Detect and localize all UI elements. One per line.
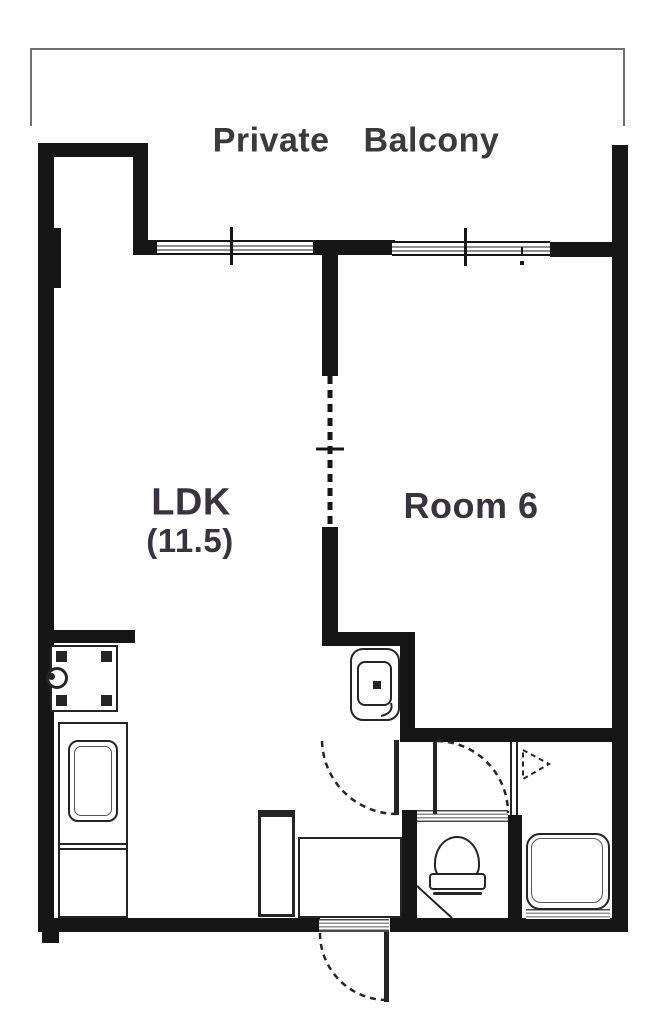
kitchen-sink — [68, 740, 118, 822]
wall-bottom-left — [38, 918, 320, 932]
hinged-door-entrance — [384, 932, 389, 1002]
ldk-label: LDK — [151, 482, 231, 525]
wall-partition-bottom — [322, 527, 338, 645]
wall-bottom-foot — [42, 932, 59, 943]
hinged-door-ldk — [394, 740, 399, 815]
kitchen-sink-basin — [74, 746, 112, 816]
wall-under-room6 — [400, 728, 628, 742]
window-left-center-tick — [230, 227, 233, 265]
door-arc-entrance — [320, 933, 386, 1000]
wall-washbasin-top — [322, 632, 415, 646]
bathtub-sill — [526, 909, 610, 919]
balcony-outline-left — [30, 48, 32, 126]
floor-plan: Private Balcony LDK (11.5) Room 6 — [0, 0, 658, 1024]
shoe-cabinet — [258, 810, 295, 917]
wall-toilet-bath-divider — [508, 815, 522, 932]
wall-top-left — [38, 143, 148, 157]
toilet-tank — [429, 873, 486, 890]
balcony-outline-top — [30, 48, 625, 50]
wall-left — [38, 143, 54, 932]
toilet-corner-diagonal — [417, 886, 452, 918]
window-right-division — [521, 247, 523, 256]
wall-partition-top — [322, 252, 338, 376]
entrance-step — [298, 837, 402, 918]
room6-label: Room 6 — [403, 485, 538, 527]
pan-corner-br — [101, 695, 112, 706]
door-arc-toilet — [437, 741, 508, 813]
pan-drain-dot — [48, 673, 55, 680]
wall-window-right-end — [550, 242, 612, 257]
washing-machine-pan — [50, 645, 118, 712]
folding-bath-door-icon — [523, 750, 549, 779]
ldk-size-label: (11.5) — [146, 522, 233, 560]
balcony-label: Private Balcony — [213, 122, 500, 161]
window-right-center-tick — [464, 228, 467, 266]
toilet-door-sill — [417, 810, 508, 822]
hinged-door-toilet — [433, 742, 437, 814]
toilet-tank-base-line — [433, 892, 482, 895]
pan-corner-bl — [56, 695, 67, 706]
wall-kitchen-stub — [54, 630, 135, 643]
wall-right — [612, 145, 628, 932]
kitchen-counter-divider — [58, 843, 128, 850]
balcony-outline-right — [623, 48, 625, 126]
bathtub — [526, 833, 610, 910]
folding-bath-door-frame — [510, 742, 518, 815]
door-arc-ldk — [322, 741, 396, 814]
sliding-window-right — [392, 241, 550, 256]
wall-left-pilaster — [54, 228, 61, 288]
sliding-window-left — [157, 240, 313, 255]
pan-corner-tl — [56, 651, 67, 662]
pan-corner-tr — [101, 651, 112, 662]
entrance-door-sill — [319, 919, 389, 932]
wall-bottom-right — [390, 918, 628, 932]
wall-toilet-left — [402, 810, 417, 932]
washbasin-faucet-icon — [373, 681, 381, 689]
bathtub-rim — [531, 838, 603, 903]
window-right-dot — [520, 261, 524, 265]
washbasin — [350, 648, 400, 721]
